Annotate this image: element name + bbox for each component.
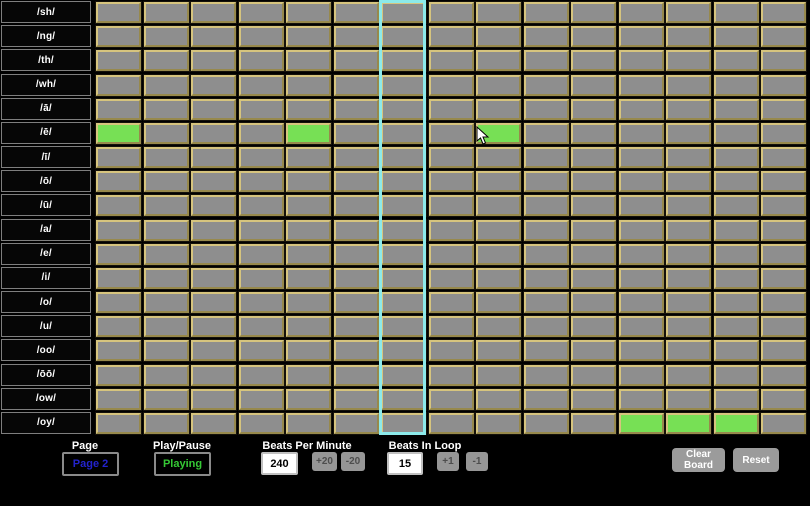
grid-cell-r2-c5[interactable] <box>334 50 379 71</box>
grid-cell-r7-c4[interactable] <box>286 171 331 192</box>
grid-cell-r11-c9[interactable] <box>524 268 569 289</box>
grid-cell-r11-c11[interactable] <box>619 268 664 289</box>
grid-cell-r4-c13[interactable] <box>714 99 759 120</box>
grid-cell-r15-c3[interactable] <box>239 365 284 386</box>
grid-cell-r6-c11[interactable] <box>619 147 664 168</box>
grid-cell-r11-c10[interactable] <box>571 268 616 289</box>
grid-cell-r13-c12[interactable] <box>666 316 711 337</box>
grid-cell-r8-c11[interactable] <box>619 195 664 216</box>
grid-cell-r12-c13[interactable] <box>714 292 759 313</box>
grid-cell-r10-c12[interactable] <box>666 244 711 265</box>
grid-cell-r1-c13[interactable] <box>714 26 759 47</box>
grid-cell-r0-c9[interactable] <box>524 2 569 23</box>
grid-cell-r8-c3[interactable] <box>239 195 284 216</box>
grid-cell-r3-c12[interactable] <box>666 75 711 96</box>
grid-cell-r2-c6[interactable] <box>381 50 426 71</box>
grid-cell-r17-c11[interactable] <box>619 413 664 434</box>
grid-cell-r16-c4[interactable] <box>286 389 331 410</box>
row-label-8: /ō/ <box>1 170 91 192</box>
grid-cell-r11-c1[interactable] <box>144 268 189 289</box>
grid-cell-r5-c12[interactable] <box>666 123 711 144</box>
grid-cell-r17-c7[interactable] <box>429 413 474 434</box>
grid-cell-r17-c3[interactable] <box>239 413 284 434</box>
grid-cell-r0-c5[interactable] <box>334 2 379 23</box>
play-pause-label: Play/Pause <box>146 440 218 452</box>
row-label-17: /ow/ <box>1 388 91 410</box>
bpm-decrease-button[interactable]: -20 <box>341 452 365 471</box>
grid-cell-r16-c13[interactable] <box>714 389 759 410</box>
grid-cell-r13-c11[interactable] <box>619 316 664 337</box>
grid-cell-r13-c8[interactable] <box>476 316 521 337</box>
grid-cell-r7-c7[interactable] <box>429 171 474 192</box>
grid-cell-r2-c1[interactable] <box>144 50 189 71</box>
grid-cell-r15-c13[interactable] <box>714 365 759 386</box>
grid-cell-r10-c1[interactable] <box>144 244 189 265</box>
grid-cell-r17-c0[interactable] <box>96 413 141 434</box>
grid-cell-r7-c10[interactable] <box>571 171 616 192</box>
grid-cell-r0-c8[interactable] <box>476 2 521 23</box>
grid-cell-r14-c9[interactable] <box>524 340 569 361</box>
grid-cell-r12-c9[interactable] <box>524 292 569 313</box>
grid-cell-r11-c7[interactable] <box>429 268 474 289</box>
page-label: Page <box>55 440 115 452</box>
grid-cell-r12-c4[interactable] <box>286 292 331 313</box>
grid-cell-r9-c0[interactable] <box>96 220 141 241</box>
grid-cell-r11-c8[interactable] <box>476 268 521 289</box>
grid-cell-r15-c0[interactable] <box>96 365 141 386</box>
grid-cell-r5-c13[interactable] <box>714 123 759 144</box>
grid-cell-r5-c2[interactable] <box>191 123 236 144</box>
row-label-12: /i/ <box>1 267 91 289</box>
grid-cell-r2-c7[interactable] <box>429 50 474 71</box>
grid-cell-r4-c11[interactable] <box>619 99 664 120</box>
grid-cell-r17-c13[interactable] <box>714 413 759 434</box>
grid-cell-r1-c3[interactable] <box>239 26 284 47</box>
row-label-7: /ī/ <box>1 146 91 168</box>
grid-cell-r7-c13[interactable] <box>714 171 759 192</box>
grid-cell-r14-c13[interactable] <box>714 340 759 361</box>
grid-cell-r2-c12[interactable] <box>666 50 711 71</box>
grid-cell-r8-c2[interactable] <box>191 195 236 216</box>
grid-cell-r14-c6[interactable] <box>381 340 426 361</box>
grid-cell-r9-c4[interactable] <box>286 220 331 241</box>
grid-cell-r4-c9[interactable] <box>524 99 569 120</box>
grid-cell-r10-c10[interactable] <box>571 244 616 265</box>
grid-cell-r17-c9[interactable] <box>524 413 569 434</box>
grid-cell-r17-c4[interactable] <box>286 413 331 434</box>
grid-cell-r16-c14[interactable] <box>761 389 806 410</box>
grid-cell-r5-c11[interactable] <box>619 123 664 144</box>
row-label-3: /th/ <box>1 49 91 71</box>
grid-cell-r5-c0[interactable] <box>96 123 141 144</box>
grid-cell-r3-c6[interactable] <box>381 75 426 96</box>
grid-cell-r7-c1[interactable] <box>144 171 189 192</box>
grid-cell-r3-c13[interactable] <box>714 75 759 96</box>
grid-cell-r12-c14[interactable] <box>761 292 806 313</box>
grid-cell-r10-c5[interactable] <box>334 244 379 265</box>
grid-cell-r9-c9[interactable] <box>524 220 569 241</box>
grid-cell-r12-c2[interactable] <box>191 292 236 313</box>
grid-cell-r8-c1[interactable] <box>144 195 189 216</box>
row-label-14: /u/ <box>1 315 91 337</box>
grid-cell-r7-c6[interactable] <box>381 171 426 192</box>
grid-cell-r6-c5[interactable] <box>334 147 379 168</box>
grid-cell-r16-c1[interactable] <box>144 389 189 410</box>
grid-cell-r8-c13[interactable] <box>714 195 759 216</box>
grid-cell-r3-c8[interactable] <box>476 75 521 96</box>
grid-cell-r10-c7[interactable] <box>429 244 474 265</box>
grid-cell-r17-c12[interactable] <box>666 413 711 434</box>
grid-cell-r3-c11[interactable] <box>619 75 664 96</box>
grid-cell-r5-c7[interactable] <box>429 123 474 144</box>
grid-cell-r5-c3[interactable] <box>239 123 284 144</box>
grid-cell-r6-c12[interactable] <box>666 147 711 168</box>
grid-cell-r0-c2[interactable] <box>191 2 236 23</box>
grid-cell-r9-c3[interactable] <box>239 220 284 241</box>
grid-cell-r10-c13[interactable] <box>714 244 759 265</box>
grid-cell-r16-c11[interactable] <box>619 389 664 410</box>
grid-cell-r11-c5[interactable] <box>334 268 379 289</box>
beats-in-loop-increase-button[interactable]: +1 <box>437 452 459 471</box>
grid-cell-r14-c10[interactable] <box>571 340 616 361</box>
grid-cell-r12-c0[interactable] <box>96 292 141 313</box>
grid-cell-r11-c2[interactable] <box>191 268 236 289</box>
grid-cell-r6-c14[interactable] <box>761 147 806 168</box>
grid-cell-r9-c6[interactable] <box>381 220 426 241</box>
grid-cell-r8-c10[interactable] <box>571 195 616 216</box>
grid-cell-r2-c11[interactable] <box>619 50 664 71</box>
grid-cell-r14-c5[interactable] <box>334 340 379 361</box>
grid-cell-r3-c4[interactable] <box>286 75 331 96</box>
grid-cell-r11-c6[interactable] <box>381 268 426 289</box>
grid-cell-r17-c5[interactable] <box>334 413 379 434</box>
grid-cell-r8-c5[interactable] <box>334 195 379 216</box>
grid-cell-r0-c4[interactable] <box>286 2 331 23</box>
grid-cell-r2-c10[interactable] <box>571 50 616 71</box>
grid-cell-r5-c14[interactable] <box>761 123 806 144</box>
grid-cell-r6-c13[interactable] <box>714 147 759 168</box>
grid-cell-r12-c3[interactable] <box>239 292 284 313</box>
grid-cell-r17-c8[interactable] <box>476 413 521 434</box>
play-pause-toggle[interactable]: Playing <box>154 452 211 476</box>
grid-cell-r12-c12[interactable] <box>666 292 711 313</box>
grid-cell-r13-c1[interactable] <box>144 316 189 337</box>
grid-cell-r14-c7[interactable] <box>429 340 474 361</box>
grid-cell-r1-c2[interactable] <box>191 26 236 47</box>
grid-cell-r7-c12[interactable] <box>666 171 711 192</box>
grid-cell-r6-c10[interactable] <box>571 147 616 168</box>
grid-cell-r14-c2[interactable] <box>191 340 236 361</box>
grid-cell-r5-c5[interactable] <box>334 123 379 144</box>
grid-cell-r15-c7[interactable] <box>429 365 474 386</box>
grid-cell-r7-c14[interactable] <box>761 171 806 192</box>
grid-cell-r0-c3[interactable] <box>239 2 284 23</box>
grid-cell-r15-c4[interactable] <box>286 365 331 386</box>
grid-cell-r13-c6[interactable] <box>381 316 426 337</box>
grid-cell-r0-c13[interactable] <box>714 2 759 23</box>
grid-cell-r12-c6[interactable] <box>381 292 426 313</box>
grid-cell-r10-c0[interactable] <box>96 244 141 265</box>
grid-cell-r11-c14[interactable] <box>761 268 806 289</box>
grid-cell-r8-c14[interactable] <box>761 195 806 216</box>
grid-cell-r1-c12[interactable] <box>666 26 711 47</box>
grid-cell-r7-c9[interactable] <box>524 171 569 192</box>
bpm-increase-button[interactable]: +20 <box>312 452 337 471</box>
grid-cell-r16-c10[interactable] <box>571 389 616 410</box>
grid-cell-r1-c0[interactable] <box>96 26 141 47</box>
grid-cell-r11-c3[interactable] <box>239 268 284 289</box>
grid-cell-r10-c14[interactable] <box>761 244 806 265</box>
grid-cell-r1-c6[interactable] <box>381 26 426 47</box>
grid-cell-r12-c7[interactable] <box>429 292 474 313</box>
grid-cell-r3-c0[interactable] <box>96 75 141 96</box>
grid-cell-r15-c2[interactable] <box>191 365 236 386</box>
grid-cell-r3-c2[interactable] <box>191 75 236 96</box>
grid-cell-r16-c5[interactable] <box>334 389 379 410</box>
grid-cell-r0-c10[interactable] <box>571 2 616 23</box>
grid-cell-r13-c13[interactable] <box>714 316 759 337</box>
grid-cell-r14-c8[interactable] <box>476 340 521 361</box>
grid-cell-r9-c14[interactable] <box>761 220 806 241</box>
grid-cell-r15-c11[interactable] <box>619 365 664 386</box>
grid-cell-r15-c10[interactable] <box>571 365 616 386</box>
grid-cell-r16-c2[interactable] <box>191 389 236 410</box>
row-label-4: /wh/ <box>1 74 91 96</box>
grid-cell-r9-c5[interactable] <box>334 220 379 241</box>
grid-cell-r16-c9[interactable] <box>524 389 569 410</box>
grid-cell-r2-c2[interactable] <box>191 50 236 71</box>
grid-cell-r8-c8[interactable] <box>476 195 521 216</box>
grid-cell-r5-c8[interactable] <box>476 123 521 144</box>
row-label-9: /ū/ <box>1 194 91 216</box>
grid-cell-r12-c5[interactable] <box>334 292 379 313</box>
grid-cell-r4-c10[interactable] <box>571 99 616 120</box>
grid-cell-r0-c7[interactable] <box>429 2 474 23</box>
grid-cell-r7-c8[interactable] <box>476 171 521 192</box>
grid-cell-r0-c14[interactable] <box>761 2 806 23</box>
grid-cell-r7-c11[interactable] <box>619 171 664 192</box>
grid-cell-r0-c1[interactable] <box>144 2 189 23</box>
grid-cell-r9-c10[interactable] <box>571 220 616 241</box>
row-label-11: /e/ <box>1 243 91 265</box>
grid-cell-r1-c5[interactable] <box>334 26 379 47</box>
grid-cell-r17-c2[interactable] <box>191 413 236 434</box>
grid-cell-r17-c6[interactable] <box>381 413 426 434</box>
grid-cell-r2-c4[interactable] <box>286 50 331 71</box>
grid-cell-r10-c11[interactable] <box>619 244 664 265</box>
grid-cell-r12-c11[interactable] <box>619 292 664 313</box>
grid-cell-r11-c12[interactable] <box>666 268 711 289</box>
grid-cell-r13-c0[interactable] <box>96 316 141 337</box>
grid-cell-r1-c7[interactable] <box>429 26 474 47</box>
grid-cell-r11-c13[interactable] <box>714 268 759 289</box>
grid-cell-r4-c6[interactable] <box>381 99 426 120</box>
reset-button[interactable]: Reset <box>733 448 779 472</box>
grid-cell-r3-c1[interactable] <box>144 75 189 96</box>
grid-cell-r4-c12[interactable] <box>666 99 711 120</box>
grid-cell-r6-c7[interactable] <box>429 147 474 168</box>
grid-cell-r14-c4[interactable] <box>286 340 331 361</box>
grid-cell-r11-c0[interactable] <box>96 268 141 289</box>
grid-cell-r1-c11[interactable] <box>619 26 664 47</box>
grid-cell-r8-c6[interactable] <box>381 195 426 216</box>
grid-cell-r13-c9[interactable] <box>524 316 569 337</box>
grid-cell-r6-c3[interactable] <box>239 147 284 168</box>
grid-cell-r6-c4[interactable] <box>286 147 331 168</box>
grid-cell-r1-c8[interactable] <box>476 26 521 47</box>
grid-cell-r9-c13[interactable] <box>714 220 759 241</box>
grid-cell-r16-c12[interactable] <box>666 389 711 410</box>
grid-cell-r6-c9[interactable] <box>524 147 569 168</box>
grid-cell-r6-c8[interactable] <box>476 147 521 168</box>
grid-cell-r9-c12[interactable] <box>666 220 711 241</box>
grid-cell-r1-c14[interactable] <box>761 26 806 47</box>
grid-cell-r13-c14[interactable] <box>761 316 806 337</box>
grid-cell-r13-c5[interactable] <box>334 316 379 337</box>
grid-cell-r5-c1[interactable] <box>144 123 189 144</box>
grid-cell-r3-c7[interactable] <box>429 75 474 96</box>
grid-cell-r9-c11[interactable] <box>619 220 664 241</box>
grid-cell-r6-c0[interactable] <box>96 147 141 168</box>
grid-cell-r0-c11[interactable] <box>619 2 664 23</box>
grid-cell-r7-c3[interactable] <box>239 171 284 192</box>
grid-cell-r5-c9[interactable] <box>524 123 569 144</box>
grid-cell-r2-c0[interactable] <box>96 50 141 71</box>
grid-cell-r3-c3[interactable] <box>239 75 284 96</box>
grid-cell-r10-c4[interactable] <box>286 244 331 265</box>
grid-cell-r13-c2[interactable] <box>191 316 236 337</box>
grid-cell-r2-c14[interactable] <box>761 50 806 71</box>
grid-cell-r12-c8[interactable] <box>476 292 521 313</box>
grid-cell-r8-c12[interactable] <box>666 195 711 216</box>
grid-cell-r8-c4[interactable] <box>286 195 331 216</box>
grid-cell-r13-c3[interactable] <box>239 316 284 337</box>
grid-cell-r4-c4[interactable] <box>286 99 331 120</box>
grid-cell-r10-c6[interactable] <box>381 244 426 265</box>
row-label-16: /ōō/ <box>1 364 91 386</box>
grid-cell-r0-c0[interactable] <box>96 2 141 23</box>
grid-cell-r2-c8[interactable] <box>476 50 521 71</box>
grid-cell-r16-c6[interactable] <box>381 389 426 410</box>
grid-cell-r0-c12[interactable] <box>666 2 711 23</box>
grid-cell-r3-c9[interactable] <box>524 75 569 96</box>
grid-cell-r4-c7[interactable] <box>429 99 474 120</box>
row-label-15: /oo/ <box>1 339 91 361</box>
row-label-13: /o/ <box>1 291 91 313</box>
grid-cell-r15-c14[interactable] <box>761 365 806 386</box>
grid-cell-r17-c14[interactable] <box>761 413 806 434</box>
grid-cell-r15-c8[interactable] <box>476 365 521 386</box>
grid-cell-r15-c6[interactable] <box>381 365 426 386</box>
grid-cell-r5-c10[interactable] <box>571 123 616 144</box>
bpm-value-field[interactable]: 240 <box>261 452 298 475</box>
clear-board-button[interactable]: Clear Board <box>672 448 725 472</box>
grid-cell-r14-c1[interactable] <box>144 340 189 361</box>
grid-cell-r14-c14[interactable] <box>761 340 806 361</box>
grid-cell-r15-c5[interactable] <box>334 365 379 386</box>
grid-cell-r14-c11[interactable] <box>619 340 664 361</box>
grid-cell-r1-c10[interactable] <box>571 26 616 47</box>
grid-cell-r7-c2[interactable] <box>191 171 236 192</box>
row-label-10: /a/ <box>1 219 91 241</box>
page-selector[interactable]: Page 2 <box>62 452 119 476</box>
grid-cell-r4-c0[interactable] <box>96 99 141 120</box>
grid-cell-r6-c2[interactable] <box>191 147 236 168</box>
bpm-label: Beats Per Minute <box>257 440 357 452</box>
grid-cell-r3-c14[interactable] <box>761 75 806 96</box>
grid-cell-r9-c1[interactable] <box>144 220 189 241</box>
beats-in-loop-decrease-button[interactable]: -1 <box>466 452 488 471</box>
grid-cell-r13-c4[interactable] <box>286 316 331 337</box>
grid-cell-r9-c2[interactable] <box>191 220 236 241</box>
beats-in-loop-value-field[interactable]: 15 <box>387 452 423 475</box>
grid-cell-r9-c7[interactable] <box>429 220 474 241</box>
grid-cell-r8-c0[interactable] <box>96 195 141 216</box>
grid-cell-r10-c9[interactable] <box>524 244 569 265</box>
row-label-18: /oy/ <box>1 412 91 434</box>
grid-cell-r4-c5[interactable] <box>334 99 379 120</box>
grid-cell-r9-c8[interactable] <box>476 220 521 241</box>
grid-cell-r2-c3[interactable] <box>239 50 284 71</box>
grid-cell-r12-c10[interactable] <box>571 292 616 313</box>
grid-cell-r10-c2[interactable] <box>191 244 236 265</box>
grid-cell-r16-c3[interactable] <box>239 389 284 410</box>
grid-cell-r13-c10[interactable] <box>571 316 616 337</box>
grid-cell-r15-c9[interactable] <box>524 365 569 386</box>
grid-cell-r3-c5[interactable] <box>334 75 379 96</box>
grid-cell-r11-c4[interactable] <box>286 268 331 289</box>
grid-cell-r4-c2[interactable] <box>191 99 236 120</box>
grid-cell-r5-c6[interactable] <box>381 123 426 144</box>
grid-cell-r4-c3[interactable] <box>239 99 284 120</box>
row-label-2: /ng/ <box>1 25 91 47</box>
grid-cell-r10-c8[interactable] <box>476 244 521 265</box>
grid-cell-r14-c0[interactable] <box>96 340 141 361</box>
grid-cell-r2-c13[interactable] <box>714 50 759 71</box>
grid-cell-r10-c3[interactable] <box>239 244 284 265</box>
grid-cell-r1-c9[interactable] <box>524 26 569 47</box>
sequencer-app: /sh//ng//th//wh//ā//ē//ī//ō//ū//a//e//i/… <box>0 0 810 506</box>
grid-cell-r15-c12[interactable] <box>666 365 711 386</box>
row-label-5: /ā/ <box>1 98 91 120</box>
grid-cell-r6-c1[interactable] <box>144 147 189 168</box>
grid-cell-r4-c8[interactable] <box>476 99 521 120</box>
grid-cell-r17-c10[interactable] <box>571 413 616 434</box>
grid-cell-r4-c14[interactable] <box>761 99 806 120</box>
grid-cell-r14-c12[interactable] <box>666 340 711 361</box>
grid-cell-r4-c1[interactable] <box>144 99 189 120</box>
grid-cell-r17-c1[interactable] <box>144 413 189 434</box>
grid-cell-r0-c6[interactable] <box>381 2 426 23</box>
grid-cell-r16-c8[interactable] <box>476 389 521 410</box>
grid-cell-r8-c7[interactable] <box>429 195 474 216</box>
grid-cell-r13-c7[interactable] <box>429 316 474 337</box>
grid-cell-r16-c0[interactable] <box>96 389 141 410</box>
grid-cell-r7-c5[interactable] <box>334 171 379 192</box>
grid-cell-r3-c10[interactable] <box>571 75 616 96</box>
grid-cell-r14-c3[interactable] <box>239 340 284 361</box>
grid-cell-r6-c6[interactable] <box>381 147 426 168</box>
grid-cell-r15-c1[interactable] <box>144 365 189 386</box>
grid-cell-r8-c9[interactable] <box>524 195 569 216</box>
grid-cell-r12-c1[interactable] <box>144 292 189 313</box>
grid-cell-r7-c0[interactable] <box>96 171 141 192</box>
grid-cell-r5-c4[interactable] <box>286 123 331 144</box>
grid-cell-r1-c1[interactable] <box>144 26 189 47</box>
grid-cell-r1-c4[interactable] <box>286 26 331 47</box>
grid-cell-r16-c7[interactable] <box>429 389 474 410</box>
grid-cell-r2-c9[interactable] <box>524 50 569 71</box>
